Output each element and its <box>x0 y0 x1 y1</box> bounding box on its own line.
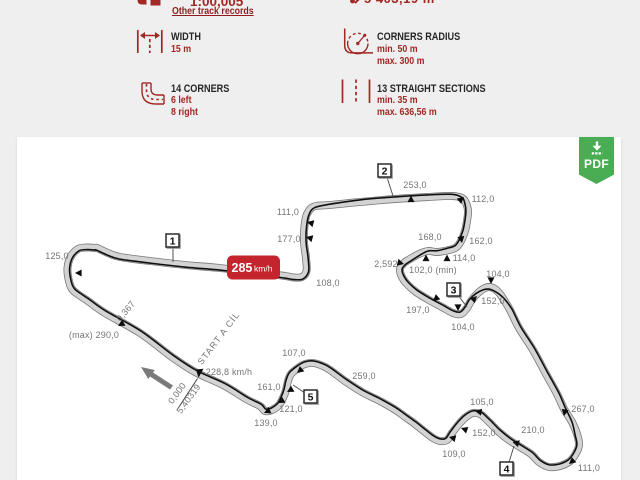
svg-text:104,0: 104,0 <box>486 269 510 279</box>
svg-text:105,0: 105,0 <box>470 397 494 407</box>
svg-text:114,0: 114,0 <box>453 253 476 263</box>
svg-text:4: 4 <box>504 464 510 476</box>
svg-text:START A CÍL: START A CÍL <box>195 310 241 367</box>
svg-text:197,0: 197,0 <box>406 305 430 315</box>
svg-text:228,8 km/h: 228,8 km/h <box>206 367 253 377</box>
svg-text:109,0: 109,0 <box>442 449 466 459</box>
svg-text:259,0: 259,0 <box>352 371 376 381</box>
svg-text:2,592: 2,592 <box>374 259 398 269</box>
svg-text:111,0: 111,0 <box>277 207 299 217</box>
svg-text:161,0: 161,0 <box>257 382 281 392</box>
svg-text:162,0: 162,0 <box>469 236 493 246</box>
svg-text:253,0: 253,0 <box>403 180 427 190</box>
svg-text:2: 2 <box>382 166 388 178</box>
svg-text:108,0: 108,0 <box>316 278 340 288</box>
svg-text:112,0: 112,0 <box>472 194 495 204</box>
svg-text:121,0: 121,0 <box>279 404 303 414</box>
svg-text:3: 3 <box>451 285 457 297</box>
svg-text:102,0 (min): 102,0 (min) <box>409 265 457 275</box>
svg-text:210,0: 210,0 <box>521 425 545 435</box>
svg-text:152,0: 152,0 <box>472 428 496 438</box>
svg-text:139,0: 139,0 <box>254 418 278 428</box>
svg-text:1: 1 <box>170 236 176 248</box>
svg-text:107,0: 107,0 <box>282 348 306 358</box>
svg-text:168,0: 168,0 <box>418 232 442 242</box>
svg-text:125,0: 125,0 <box>45 251 69 261</box>
svg-text:177,0: 177,0 <box>277 234 301 244</box>
svg-text:111,0: 111,0 <box>578 463 600 473</box>
svg-text:104,0: 104,0 <box>451 322 475 332</box>
svg-text:km/h: km/h <box>254 264 273 274</box>
svg-text:152,0: 152,0 <box>481 296 505 306</box>
svg-text:267,0: 267,0 <box>571 404 595 414</box>
svg-text:5: 5 <box>308 392 314 404</box>
svg-text:0,367: 0,367 <box>114 299 137 323</box>
svg-text:285: 285 <box>232 261 253 275</box>
svg-text:(max) 290,0: (max) 290,0 <box>69 330 119 340</box>
